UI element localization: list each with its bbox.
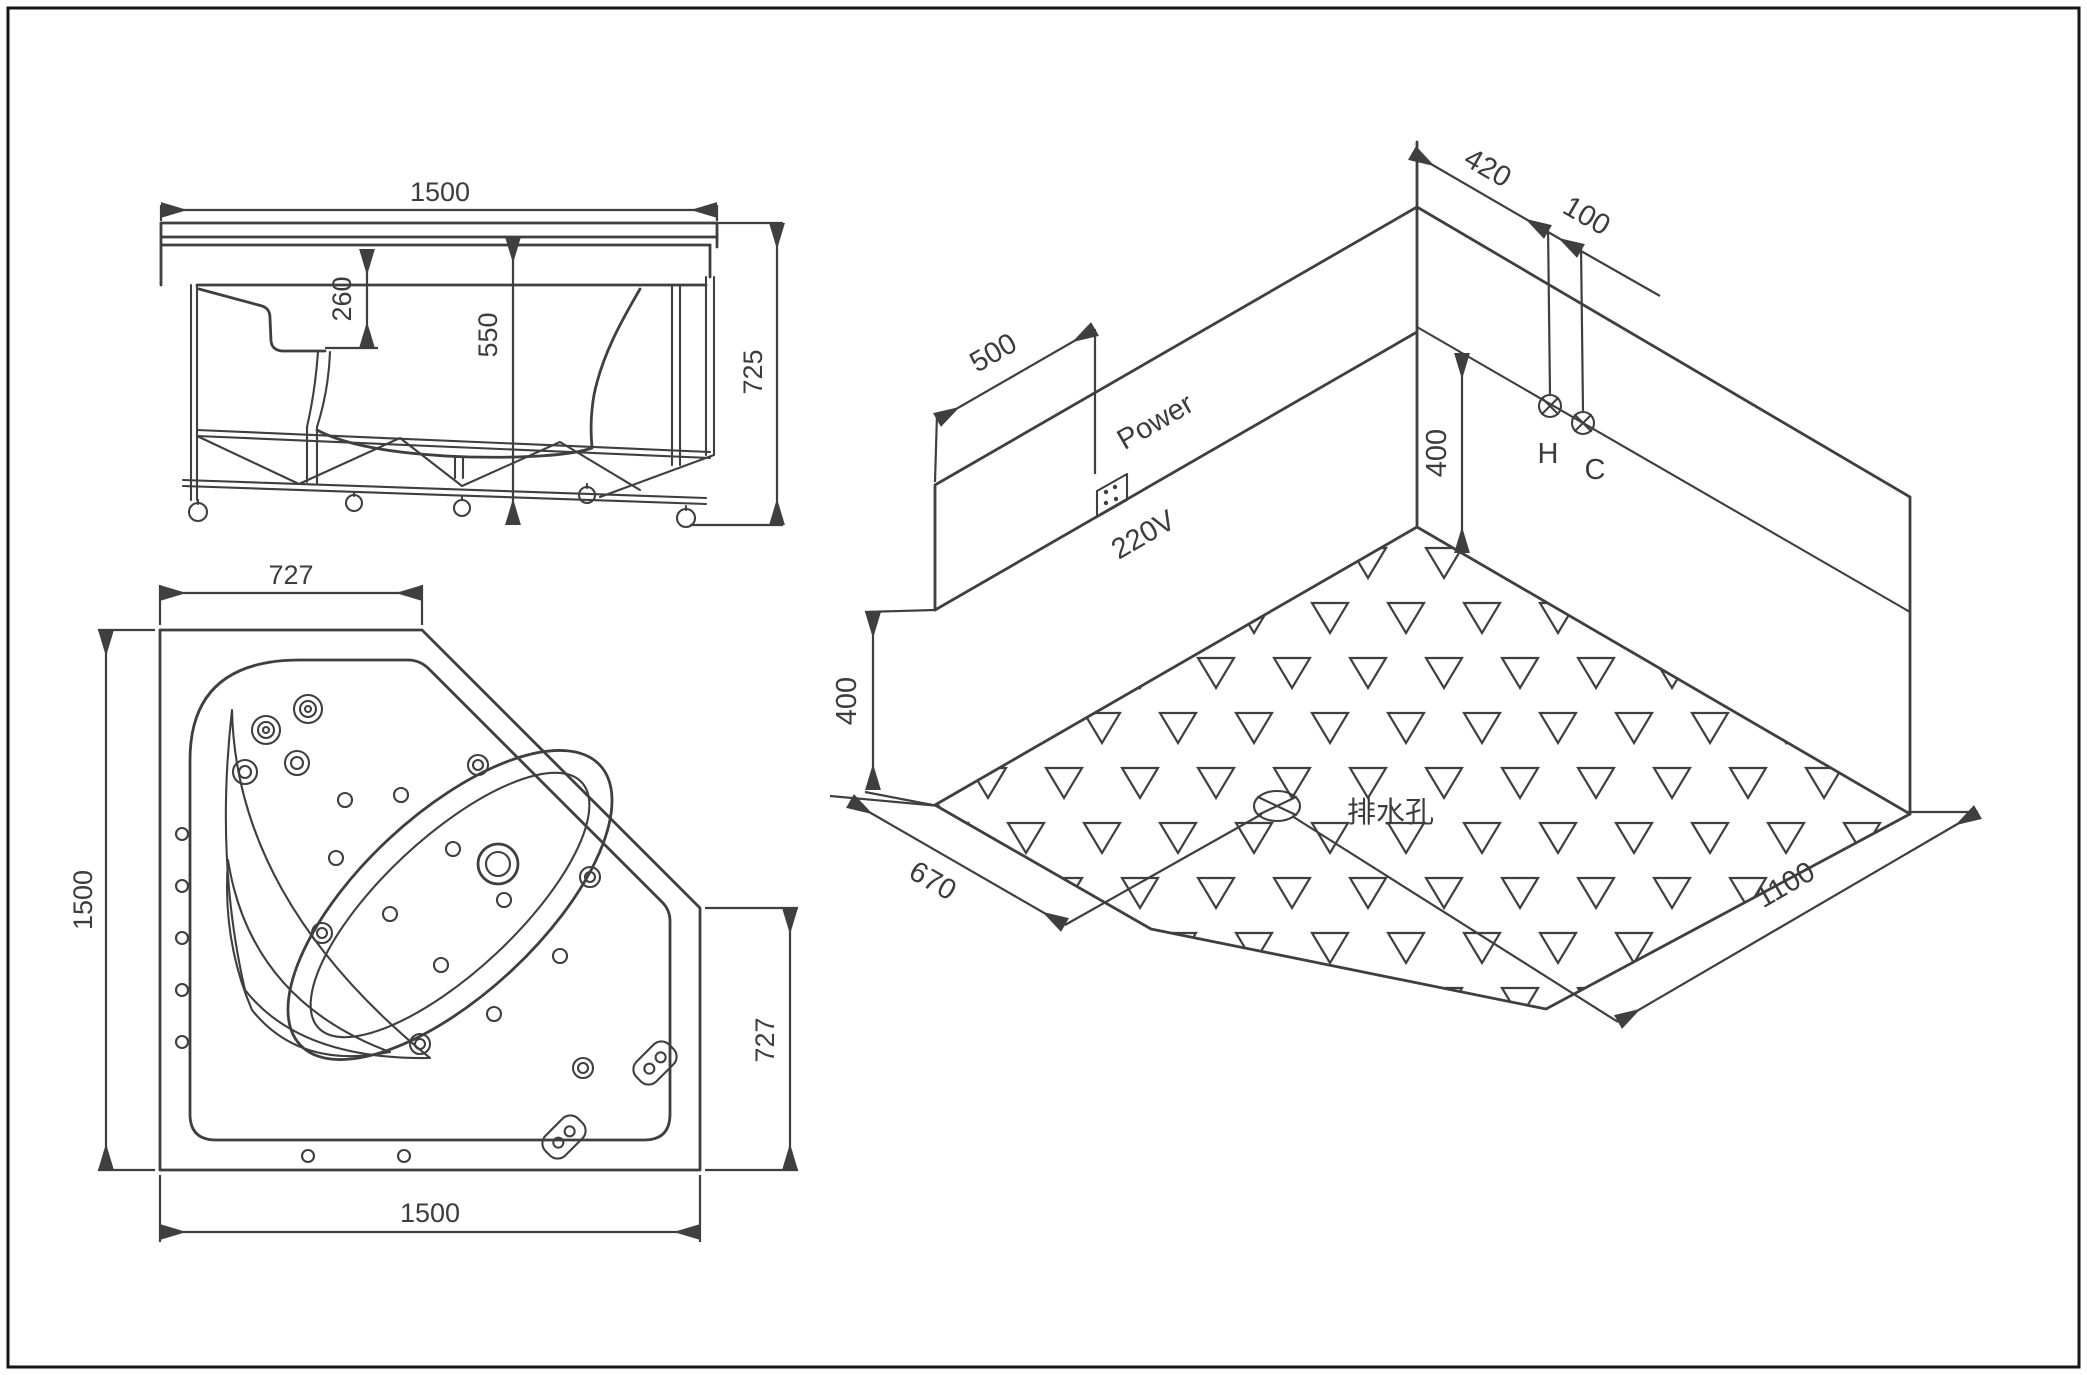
plan-right-dimension: 727 — [705, 908, 798, 1170]
support-frame — [183, 427, 710, 504]
front-height-label: 550 — [473, 312, 503, 357]
power-socket — [1097, 474, 1127, 517]
plan-top-dimension: 727 — [160, 560, 422, 625]
drawing-sheet: 1500 260 550 725 — [0, 0, 2087, 1375]
front-overall-height-dimension: 725 — [690, 223, 783, 525]
front-seat-depth-dimension: 260 — [325, 249, 378, 348]
supply-height-dimension: 400 — [1421, 353, 1462, 553]
front-seat-depth-label: 260 — [327, 276, 357, 321]
hot-distance-label: 420 — [1459, 142, 1517, 194]
front-height-dimension: 550 — [473, 237, 513, 525]
technical-drawing-canvas: 1500 260 550 725 — [0, 0, 2087, 1375]
tub-seat-profile — [199, 289, 325, 351]
floor-left-label: 670 — [904, 855, 962, 907]
cold-label: C — [1585, 454, 1606, 486]
plan-drain — [478, 844, 518, 884]
jet-cluster — [233, 695, 322, 784]
drain-stub — [455, 458, 463, 478]
tub-outline-plan — [160, 630, 700, 1170]
plan-bottom-dimension: 1500 — [160, 1175, 700, 1242]
front-width-label: 1500 — [410, 177, 470, 207]
socket-distance-label: 500 — [965, 327, 1023, 379]
hot-label: H — [1538, 438, 1559, 470]
plan-bottom-label: 1500 — [400, 1198, 460, 1228]
tub-shell-contour — [190, 660, 670, 1140]
power-label: Power — [1112, 388, 1199, 457]
plan-left-label: 1500 — [68, 870, 98, 930]
right-panel — [600, 277, 714, 497]
left-panel — [191, 285, 197, 500]
headrest-pillow-2 — [538, 1111, 590, 1163]
supply-height-label: 400 — [1421, 429, 1453, 477]
bubble-jets — [329, 788, 567, 1021]
front-overall-height-label: 725 — [738, 349, 768, 394]
plan-view: 727 1500 1500 727 — [68, 560, 798, 1242]
front-elevation-view: 1500 260 550 725 — [161, 177, 783, 527]
socket-height-label: 400 — [831, 677, 863, 725]
left-edge-jets — [176, 828, 188, 1048]
plan-left-dimension: 1500 — [68, 630, 155, 1170]
hot-cold-spacing-label: 100 — [1558, 190, 1616, 242]
isometric-installation-view: Power 220V 500 400 H C 420 — [830, 142, 1978, 1022]
headrest-pillow-1 — [629, 1037, 681, 1089]
tub-rim-edges — [161, 223, 717, 285]
rim-jets — [312, 755, 600, 1078]
sheet-border — [8, 8, 2079, 1367]
bottom-edge-holes — [302, 1150, 410, 1162]
socket-distance-dimension: 500 — [935, 327, 1095, 482]
corner-seat — [226, 710, 430, 1058]
front-width-dimension: 1500 — [161, 177, 717, 221]
plan-right-label: 727 — [750, 1017, 780, 1062]
tub-rim-band — [161, 223, 717, 245]
drain-label: 排水孔 — [1347, 796, 1434, 829]
voltage-label: 220V — [1106, 504, 1181, 566]
plan-top-label: 727 — [268, 560, 313, 590]
tub-pedestal — [307, 352, 330, 427]
socket-height-dimension: 400 — [831, 610, 938, 806]
